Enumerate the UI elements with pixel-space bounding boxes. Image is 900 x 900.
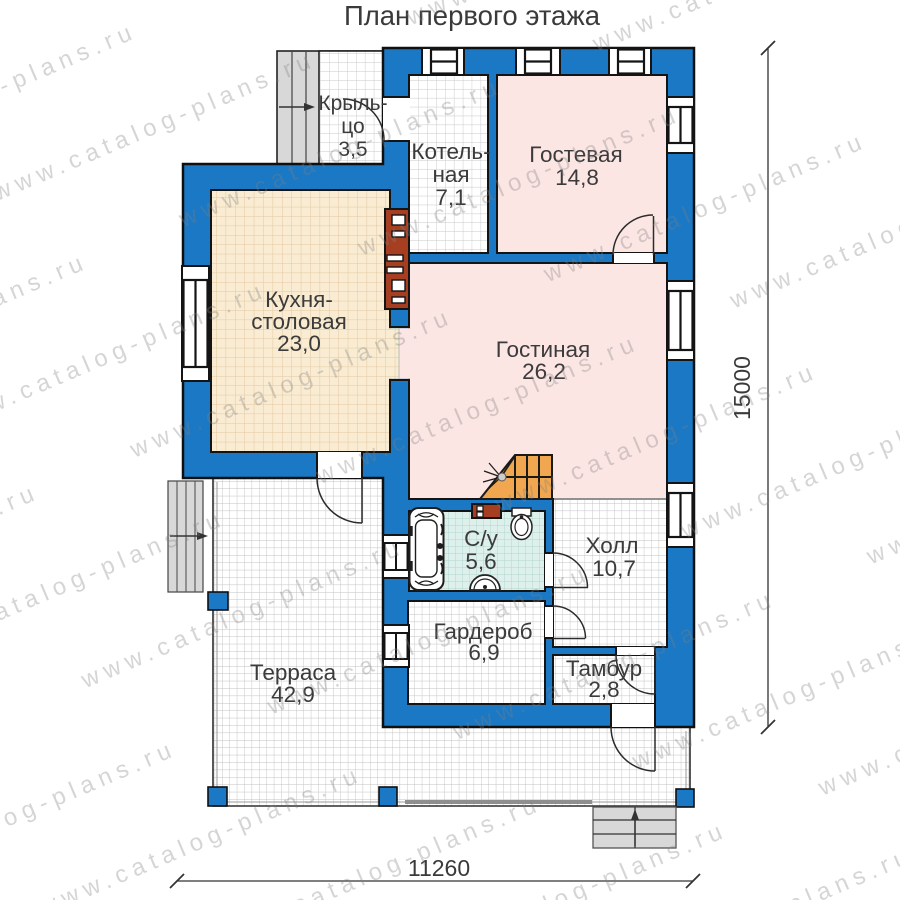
svg-text:Котель-: Котель- bbox=[411, 139, 490, 164]
svg-text:6,9: 6,9 bbox=[468, 640, 499, 665]
svg-text:ная: ная bbox=[432, 162, 469, 187]
svg-text:23,0: 23,0 bbox=[277, 331, 321, 356]
svg-text:5,6: 5,6 bbox=[465, 549, 496, 574]
svg-text:Крыль-: Крыль- bbox=[318, 92, 387, 115]
